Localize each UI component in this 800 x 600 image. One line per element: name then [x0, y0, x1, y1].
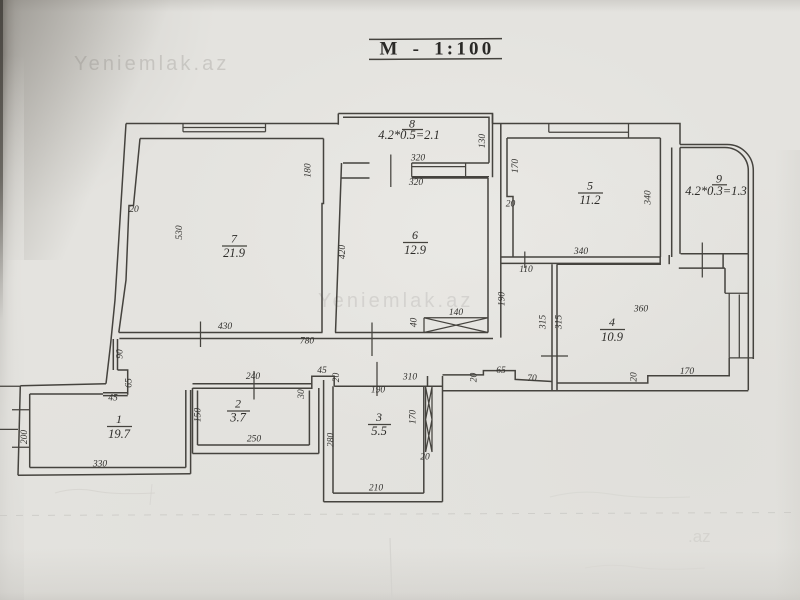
svg-text:5.5: 5.5	[371, 424, 387, 438]
svg-text:340: 340	[644, 190, 654, 206]
svg-text:3.7: 3.7	[229, 411, 246, 425]
svg-text:170: 170	[511, 159, 521, 174]
svg-text:310: 310	[402, 373, 418, 383]
svg-text:280: 280	[327, 433, 337, 448]
svg-text:4.2*0.3=1.3: 4.2*0.3=1.3	[685, 184, 747, 198]
svg-text:2: 2	[235, 397, 241, 411]
svg-text:20: 20	[332, 373, 342, 383]
svg-text:130: 130	[478, 134, 488, 149]
svg-text:3: 3	[375, 410, 382, 424]
svg-text:250: 250	[247, 435, 262, 445]
svg-text:90: 90	[116, 349, 126, 359]
svg-text:65: 65	[125, 378, 135, 388]
svg-text:190: 190	[371, 386, 386, 396]
svg-text:1: 1	[116, 412, 122, 426]
svg-text:530: 530	[175, 225, 185, 240]
svg-text:7: 7	[231, 232, 238, 246]
svg-text:340: 340	[573, 247, 589, 257]
svg-text:70: 70	[527, 374, 537, 384]
svg-text:170: 170	[680, 367, 695, 377]
svg-text:150: 150	[194, 408, 204, 423]
svg-text:430: 430	[218, 322, 233, 332]
svg-text:330: 330	[92, 460, 108, 470]
svg-text:315: 315	[555, 315, 565, 331]
svg-text:21.9: 21.9	[223, 246, 246, 260]
svg-text:Yeniemlak.az: Yeniemlak.az	[74, 53, 229, 75]
svg-text:.az: .az	[688, 527, 711, 546]
svg-text:40: 40	[410, 318, 420, 328]
svg-text:11.2: 11.2	[580, 193, 601, 207]
svg-text:20: 20	[630, 372, 640, 382]
svg-text:45: 45	[108, 394, 118, 404]
svg-text:20: 20	[129, 205, 139, 215]
svg-text:240: 240	[246, 372, 261, 382]
svg-text:10.9: 10.9	[601, 330, 624, 344]
svg-text:6: 6	[412, 228, 418, 242]
svg-text:420: 420	[338, 245, 348, 260]
svg-text:20: 20	[506, 200, 516, 210]
svg-text:4.2*0.5=2.1: 4.2*0.5=2.1	[378, 128, 440, 142]
svg-text:780: 780	[300, 337, 315, 347]
svg-text:320: 320	[410, 153, 426, 163]
svg-text:190: 190	[498, 292, 508, 307]
svg-text:20: 20	[470, 373, 480, 383]
svg-text:320: 320	[408, 178, 424, 188]
svg-text:4: 4	[609, 315, 615, 329]
svg-text:210: 210	[369, 484, 384, 494]
svg-text:315: 315	[539, 315, 549, 331]
svg-text:140: 140	[449, 308, 464, 318]
svg-text:170: 170	[409, 410, 419, 425]
svg-text:12.9: 12.9	[404, 243, 427, 257]
svg-text:30: 30	[297, 389, 307, 400]
svg-text:180: 180	[304, 163, 314, 178]
svg-text:110: 110	[519, 265, 533, 275]
svg-text:45: 45	[317, 366, 327, 376]
svg-text:5: 5	[587, 179, 593, 193]
svg-text:20: 20	[420, 453, 430, 463]
svg-text:200: 200	[20, 430, 30, 445]
svg-text:65: 65	[496, 366, 506, 376]
svg-text:M - 1:100: M - 1:100	[380, 39, 495, 60]
svg-text:19.7: 19.7	[108, 427, 131, 441]
svg-text:360: 360	[633, 305, 649, 315]
